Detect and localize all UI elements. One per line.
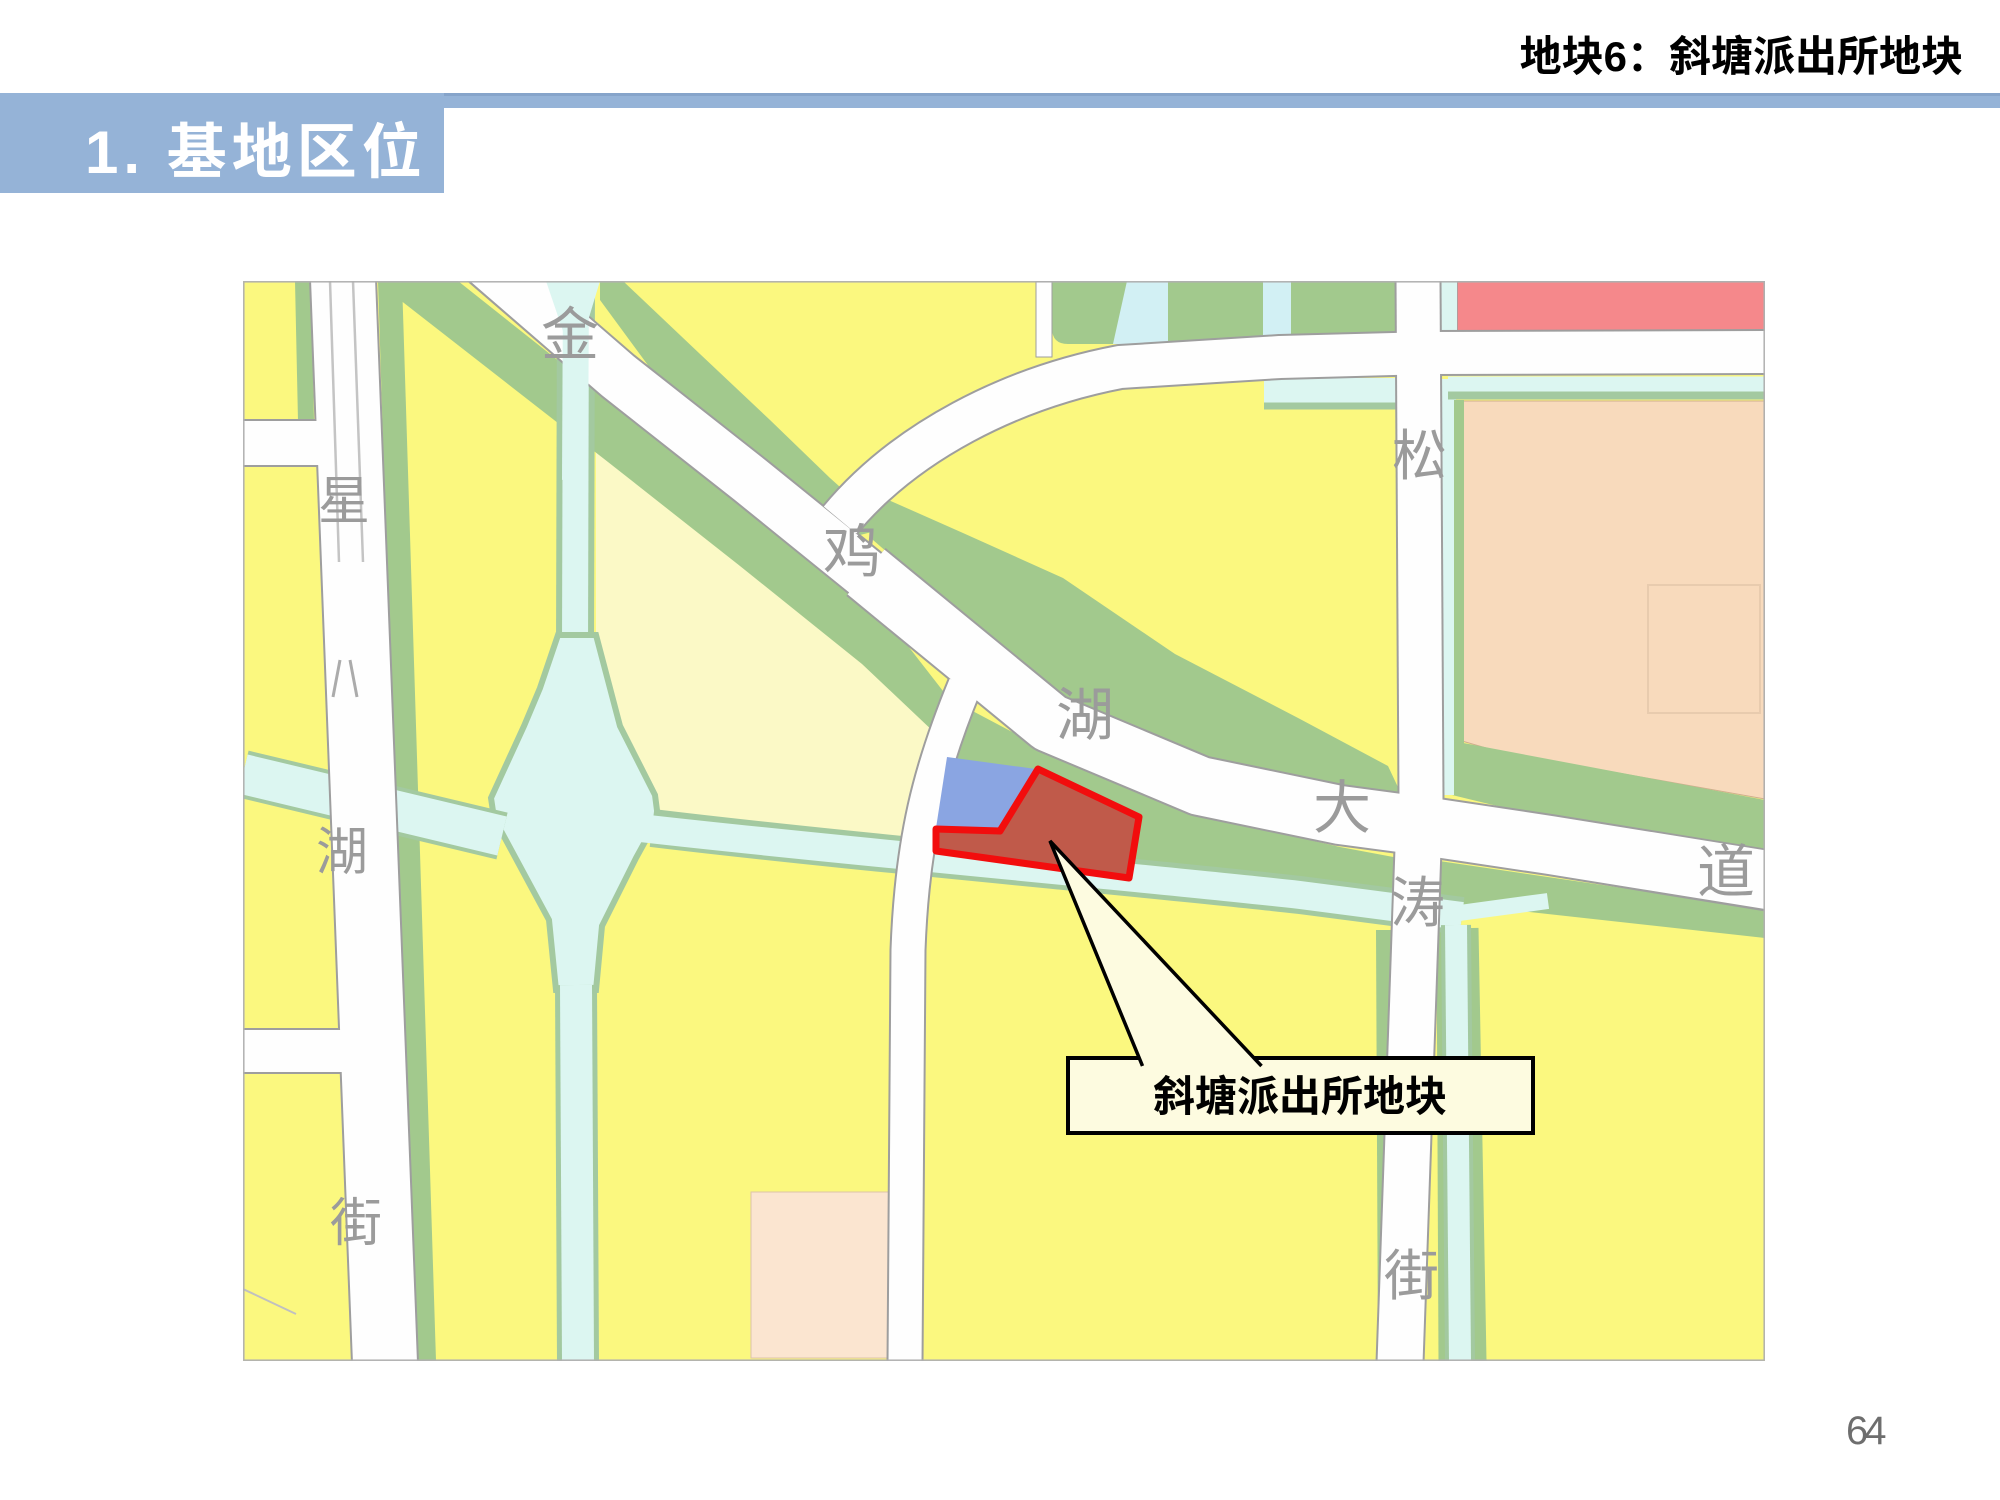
svg-text:街: 街 [1384, 1231, 1439, 1311]
svg-text:大: 大 [1313, 761, 1371, 845]
svg-text:鸡: 鸡 [823, 505, 881, 589]
svg-text:金: 金 [541, 288, 599, 372]
svg-text:街: 街 [330, 1181, 382, 1256]
svg-text:道: 道 [1697, 825, 1755, 909]
svg-text:星: 星 [318, 459, 370, 534]
svg-text:松: 松 [1392, 411, 1447, 491]
svg-text:湖: 湖 [316, 810, 368, 885]
svg-text:涛: 涛 [1390, 858, 1445, 938]
svg-text:斜塘派出所地块: 斜塘派出所地块 [1153, 1063, 1447, 1124]
svg-text:湖: 湖 [1056, 668, 1114, 752]
